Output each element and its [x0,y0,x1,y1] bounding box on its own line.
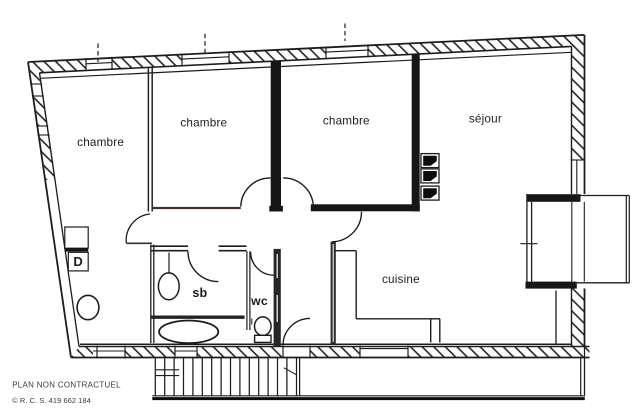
svg-text:wc: wc [250,294,268,308]
svg-text:sb: sb [192,286,207,300]
svg-text:D: D [73,254,83,269]
svg-text:chambre: chambre [180,117,227,130]
svg-text:© R. C. S. 419 662 184: © R. C. S. 419 662 184 [12,396,91,405]
svg-text:cuisine: cuisine [382,273,420,286]
svg-text:séjour: séjour [469,113,502,126]
svg-text:PLAN NON CONTRACTUEL: PLAN NON CONTRACTUEL [12,380,121,389]
svg-text:chambre: chambre [77,136,124,149]
svg-text:chambre: chambre [323,115,370,128]
